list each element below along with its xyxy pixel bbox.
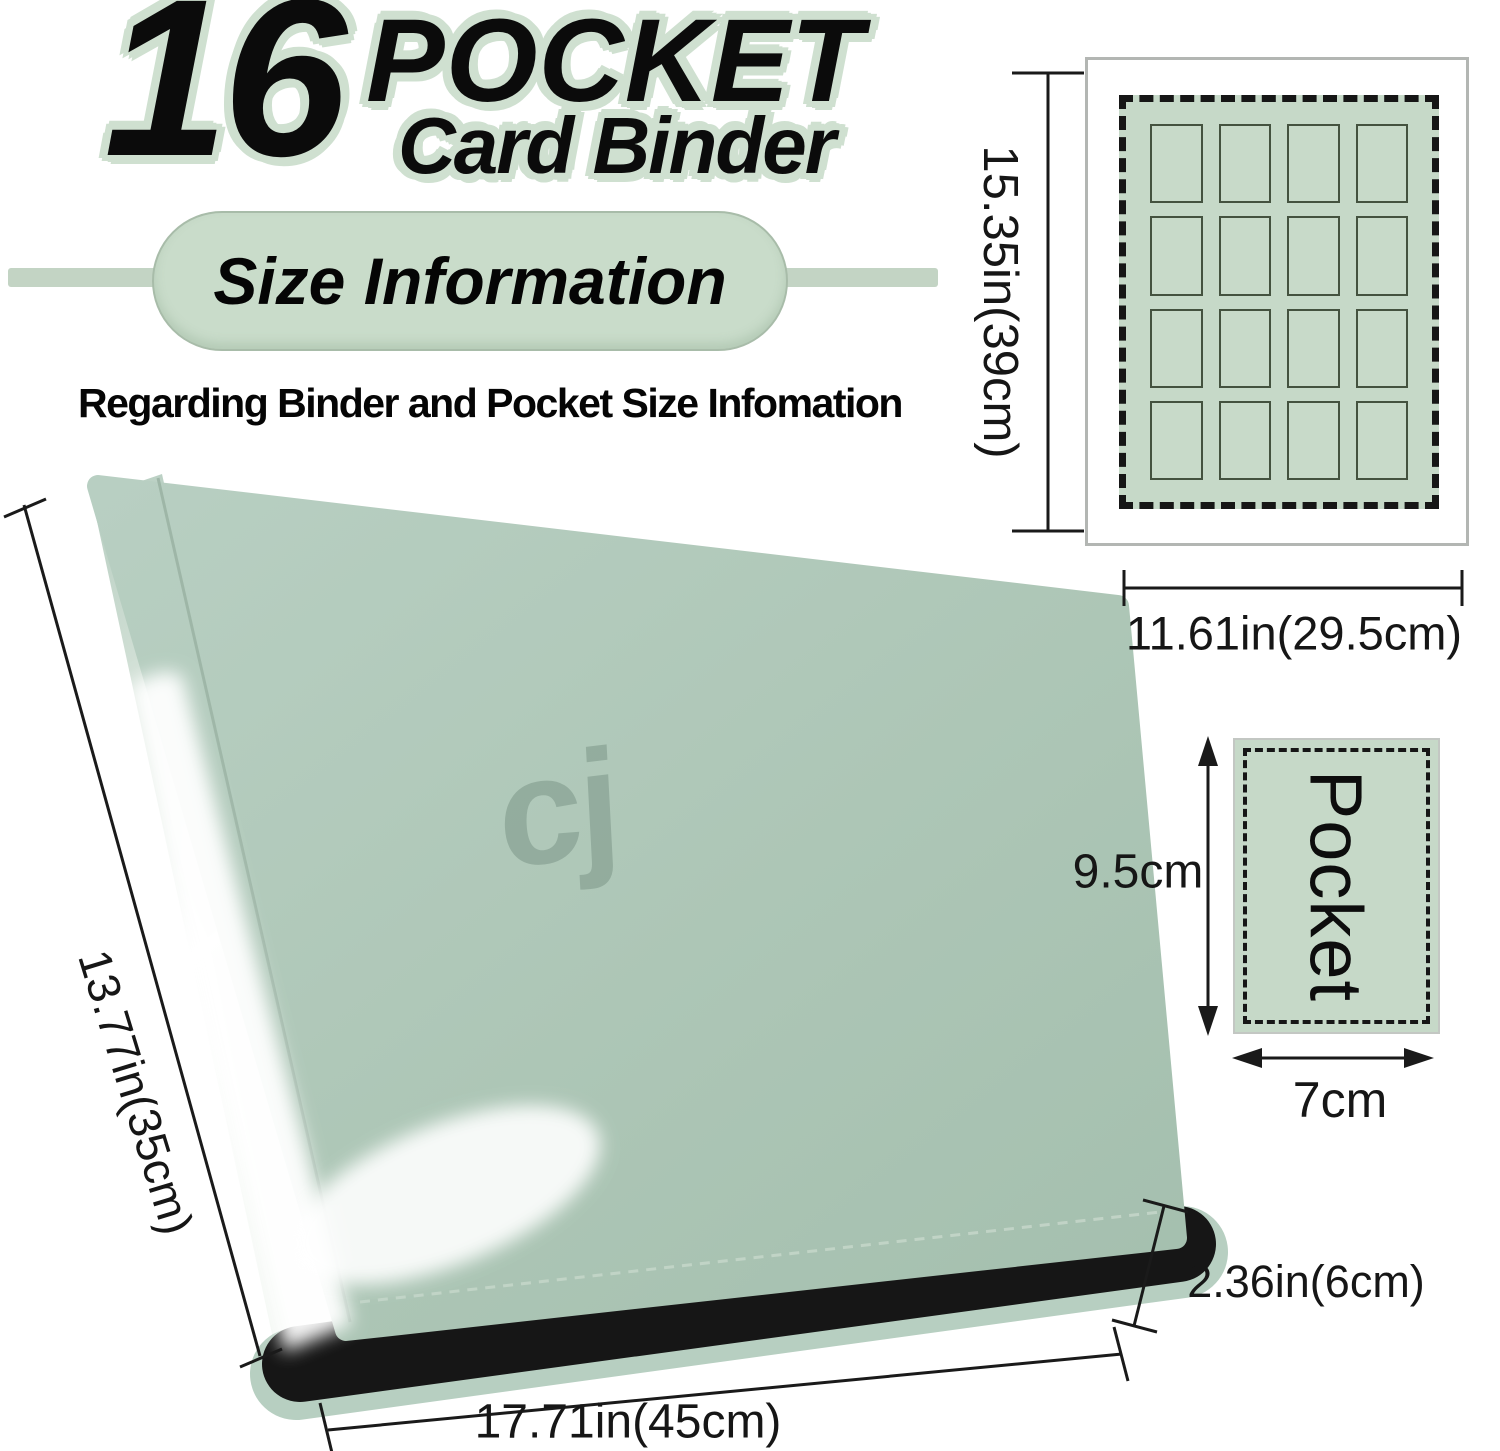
page-width-dim-label: 11.61in(29.5cm) — [1126, 606, 1462, 661]
spine-dim-line — [24, 505, 260, 1356]
width-dim-label: 17.71in(45cm) — [475, 1395, 782, 1450]
title-block: 16 POCKET Card Binder — [0, 0, 1050, 230]
pocket-width-dim-label: 7cm — [1293, 1071, 1387, 1129]
pocket-height-dim-label: 9.5cm — [1073, 845, 1204, 900]
product-size-infographic: cj 16 POCKET Card Binder Size Informatio… — [0, 0, 1500, 1451]
title-word-card-binder: Card Binder — [398, 106, 834, 186]
thickness-dim-label: 2.36in(6cm) — [1187, 1256, 1425, 1308]
thickness-dim-line — [1134, 1206, 1164, 1326]
title-number: 16 — [104, 0, 341, 190]
